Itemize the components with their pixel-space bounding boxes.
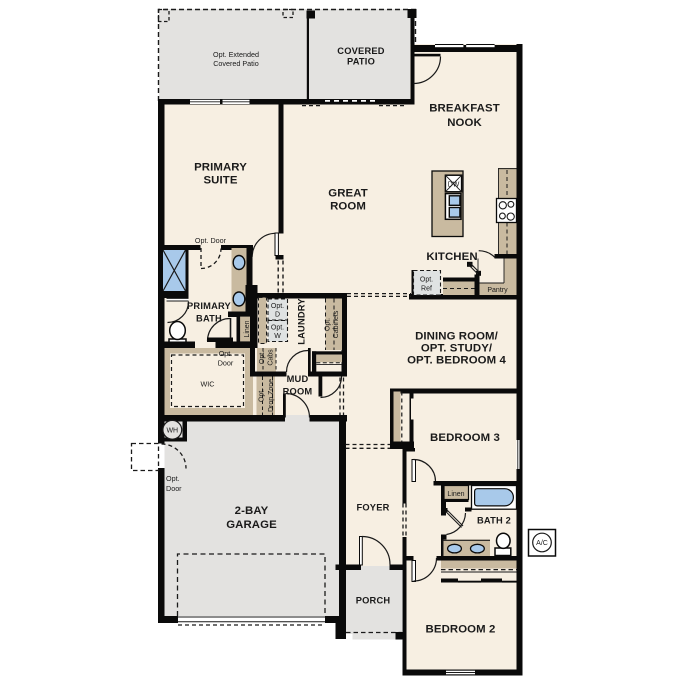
svg-text:OPT. STUDY/: OPT. STUDY/ [421, 343, 493, 355]
svg-text:Opt.: Opt. [271, 325, 284, 332]
svg-text:BATH: BATH [196, 314, 222, 324]
svg-text:PATIO: PATIO [347, 57, 375, 67]
svg-text:MUD: MUD [287, 374, 309, 384]
svg-text:Door: Door [166, 484, 182, 493]
svg-text:W: W [274, 333, 281, 340]
svg-text:Opt.: Opt. [259, 351, 266, 364]
svg-text:Opt.: Opt. [166, 474, 180, 483]
svg-text:NOOK: NOOK [447, 117, 482, 129]
svg-text:Drop Zone: Drop Zone [268, 379, 275, 412]
svg-text:Linen: Linen [244, 320, 251, 337]
svg-text:Ref: Ref [421, 286, 432, 293]
svg-text:COVERED: COVERED [337, 46, 384, 56]
svg-text:FOYER: FOYER [356, 503, 389, 513]
svg-text:ROOM: ROOM [330, 201, 366, 213]
svg-text:Opt. Door: Opt. Door [195, 236, 227, 245]
svg-text:Covered Patio: Covered Patio [213, 59, 259, 68]
svg-text:Pantry: Pantry [487, 287, 508, 294]
svg-text:PRIMARY: PRIMARY [187, 301, 232, 311]
svg-text:Opt.: Opt. [271, 303, 284, 310]
svg-text:BATH 2: BATH 2 [477, 516, 511, 526]
svg-text:Opt. Extended: Opt. Extended [213, 50, 259, 59]
svg-text:Cabs: Cabs [268, 349, 275, 366]
svg-text:SUITE: SUITE [203, 175, 237, 187]
svg-text:Opt.: Opt. [420, 277, 433, 284]
svg-text:KITCHEN: KITCHEN [426, 251, 477, 263]
svg-text:D: D [275, 312, 280, 319]
svg-text:Opt.: Opt. [219, 349, 233, 358]
svg-text:WIC: WIC [201, 380, 215, 389]
svg-text:2-BAY: 2-BAY [235, 505, 269, 517]
svg-text:Opt.: Opt. [259, 389, 266, 402]
svg-text:DW: DW [448, 182, 460, 189]
svg-text:Opt.: Opt. [325, 318, 332, 331]
svg-text:OPT. BEDROOM 4: OPT. BEDROOM 4 [407, 355, 506, 367]
svg-text:Linen: Linen [447, 491, 464, 498]
svg-text:BREAKFAST: BREAKFAST [429, 103, 500, 115]
svg-text:PORCH: PORCH [356, 596, 391, 606]
svg-text:A/C: A/C [536, 540, 548, 547]
svg-text:BEDROOM 2: BEDROOM 2 [426, 624, 496, 636]
svg-text:DINING ROOM/: DINING ROOM/ [415, 331, 499, 343]
svg-text:LAUNDRY: LAUNDRY [297, 298, 307, 345]
svg-text:Cabinets: Cabinets [333, 310, 340, 338]
svg-text:PRIMARY: PRIMARY [194, 161, 247, 173]
svg-text:ROOM: ROOM [283, 387, 313, 397]
svg-text:GARAGE: GARAGE [226, 519, 277, 531]
svg-text:BEDROOM 3: BEDROOM 3 [430, 432, 500, 444]
svg-text:Door: Door [218, 359, 234, 368]
svg-text:GREAT: GREAT [328, 188, 368, 200]
svg-text:WH: WH [166, 427, 178, 434]
